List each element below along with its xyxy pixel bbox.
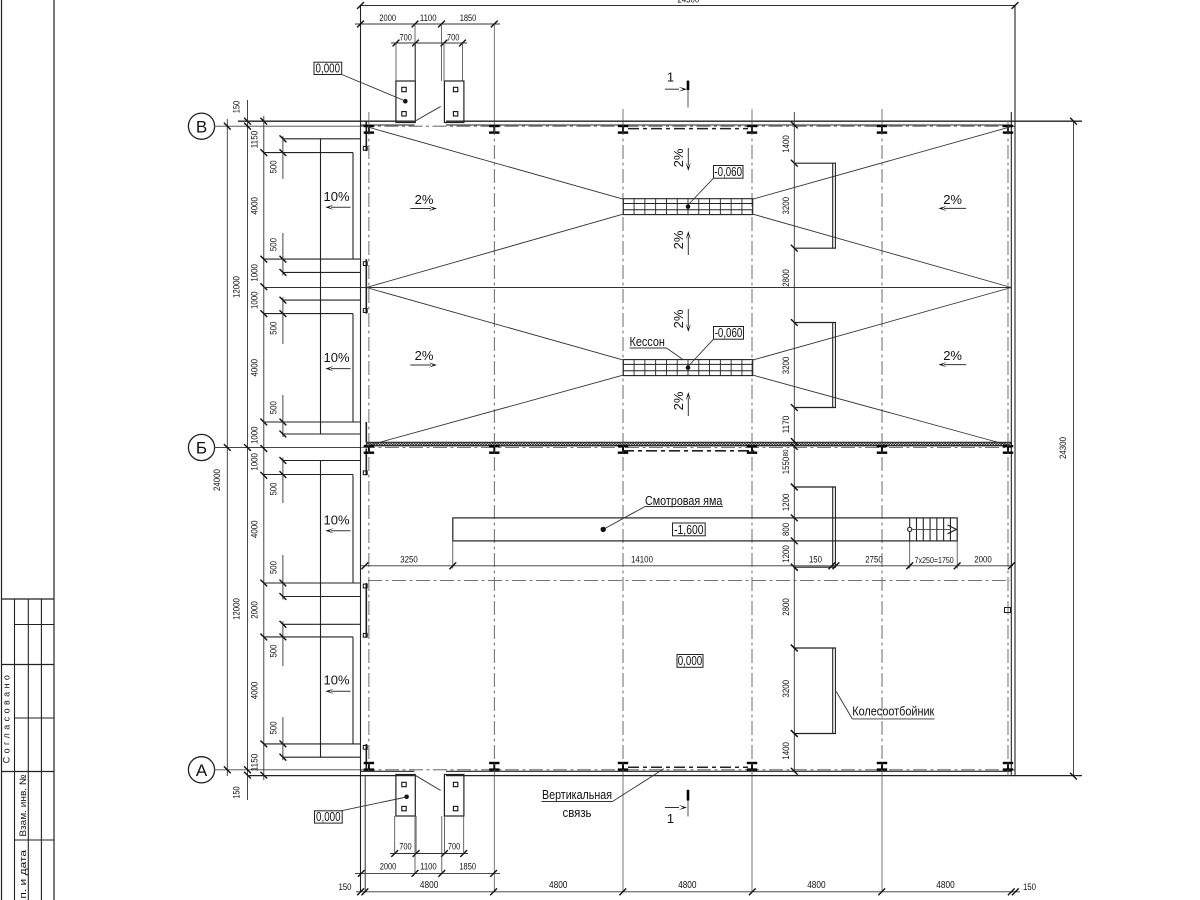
svg-text:Колесоотбойник: Колесоотбойник <box>852 704 934 719</box>
svg-text:150: 150 <box>338 882 351 893</box>
svg-text:Б: Б <box>196 439 207 458</box>
svg-text:150: 150 <box>1023 882 1036 893</box>
svg-text:1850: 1850 <box>460 13 477 23</box>
svg-text:150: 150 <box>231 786 241 798</box>
svg-text:500: 500 <box>269 238 280 251</box>
svg-text:4800: 4800 <box>678 880 697 891</box>
svg-text:2000: 2000 <box>380 861 397 871</box>
svg-text:Смотровая яма: Смотровая яма <box>645 493 723 508</box>
svg-text:1000: 1000 <box>250 291 261 309</box>
svg-text:700: 700 <box>448 842 460 852</box>
svg-text:2%: 2% <box>943 192 962 207</box>
svg-text:80: 80 <box>781 450 790 457</box>
svg-text:1100: 1100 <box>420 861 437 871</box>
svg-text:2%: 2% <box>671 230 686 249</box>
svg-text:4800: 4800 <box>936 880 955 891</box>
svg-text:4000: 4000 <box>250 197 261 215</box>
svg-text:500: 500 <box>269 401 280 414</box>
svg-text:500: 500 <box>269 721 280 734</box>
svg-text:Взам. инв. №: Взам. инв. № <box>18 774 29 836</box>
svg-text:1000: 1000 <box>250 427 261 445</box>
svg-text:500: 500 <box>269 644 280 657</box>
svg-text:2750: 2750 <box>865 555 883 566</box>
svg-text:3250: 3250 <box>400 555 418 566</box>
svg-text:0,000: 0,000 <box>316 810 341 824</box>
svg-text:700: 700 <box>400 33 412 43</box>
svg-text:10%: 10% <box>323 189 349 204</box>
svg-text:500: 500 <box>269 160 280 173</box>
svg-text:2%: 2% <box>671 309 686 328</box>
svg-text:24000: 24000 <box>212 469 223 491</box>
svg-text:1100: 1100 <box>420 13 437 23</box>
svg-text:3200: 3200 <box>781 357 792 375</box>
svg-text:-0,060: -0,060 <box>715 326 743 340</box>
svg-text:4000: 4000 <box>250 520 261 538</box>
svg-text:связь: связь <box>563 805 592 820</box>
svg-text:-0,060: -0,060 <box>714 165 742 179</box>
svg-text:12000: 12000 <box>231 276 242 298</box>
svg-text:Кессон: Кессон <box>630 334 665 349</box>
svg-text:2000: 2000 <box>250 601 261 619</box>
svg-text:700: 700 <box>399 842 411 852</box>
svg-text:0,000: 0,000 <box>316 61 341 75</box>
svg-text:10%: 10% <box>323 350 349 365</box>
svg-text:500: 500 <box>269 322 280 335</box>
svg-text:800: 800 <box>781 523 792 536</box>
svg-text:2000: 2000 <box>974 555 992 566</box>
svg-text:2%: 2% <box>415 348 434 363</box>
svg-text:1200: 1200 <box>781 494 792 512</box>
svg-text:14100: 14100 <box>631 555 653 566</box>
svg-text:1150: 1150 <box>250 131 261 149</box>
svg-text:1170: 1170 <box>781 416 792 434</box>
svg-text:2%: 2% <box>671 148 686 167</box>
svg-text:п. и дата: п. и дата <box>18 849 29 899</box>
svg-text:В: В <box>196 117 207 136</box>
svg-text:4800: 4800 <box>420 880 439 891</box>
svg-text:2%: 2% <box>415 192 434 207</box>
svg-text:0,000: 0,000 <box>678 654 703 668</box>
svg-text:3200: 3200 <box>781 680 792 698</box>
svg-text:1400: 1400 <box>781 135 792 153</box>
svg-text:150: 150 <box>231 101 241 113</box>
svg-text:2%: 2% <box>943 348 962 363</box>
svg-text:2%: 2% <box>671 391 686 410</box>
svg-text:1850: 1850 <box>459 861 476 871</box>
svg-text:Согласовано: Согласовано <box>2 672 12 764</box>
svg-text:500: 500 <box>269 561 280 574</box>
svg-text:1: 1 <box>667 811 674 826</box>
svg-text:1400: 1400 <box>781 742 792 760</box>
svg-text:4800: 4800 <box>549 880 568 891</box>
svg-text:10%: 10% <box>323 512 349 527</box>
svg-text:7х250=1750: 7х250=1750 <box>915 555 954 565</box>
svg-text:Вертикальная: Вертикальная <box>542 787 612 802</box>
svg-text:700: 700 <box>447 33 459 43</box>
svg-text:1550: 1550 <box>781 457 792 475</box>
svg-text:А: А <box>196 761 208 780</box>
svg-text:4800: 4800 <box>807 880 826 891</box>
svg-text:1: 1 <box>667 70 674 85</box>
svg-text:500: 500 <box>269 482 280 495</box>
svg-text:-1,600: -1,600 <box>674 522 703 537</box>
svg-text:2800: 2800 <box>781 598 792 616</box>
svg-text:24300: 24300 <box>1058 437 1069 459</box>
svg-text:2000: 2000 <box>379 13 396 23</box>
svg-text:12000: 12000 <box>231 598 242 620</box>
svg-text:1000: 1000 <box>250 264 261 282</box>
svg-text:10%: 10% <box>323 673 349 688</box>
svg-text:24300: 24300 <box>677 0 699 6</box>
svg-text:4000: 4000 <box>250 682 261 700</box>
svg-text:1200: 1200 <box>781 545 792 563</box>
svg-text:1000: 1000 <box>250 453 261 471</box>
svg-text:1150: 1150 <box>250 754 261 772</box>
svg-text:150: 150 <box>809 555 822 566</box>
svg-text:3200: 3200 <box>781 197 792 215</box>
svg-text:4000: 4000 <box>250 359 261 377</box>
svg-text:2800: 2800 <box>781 269 792 287</box>
